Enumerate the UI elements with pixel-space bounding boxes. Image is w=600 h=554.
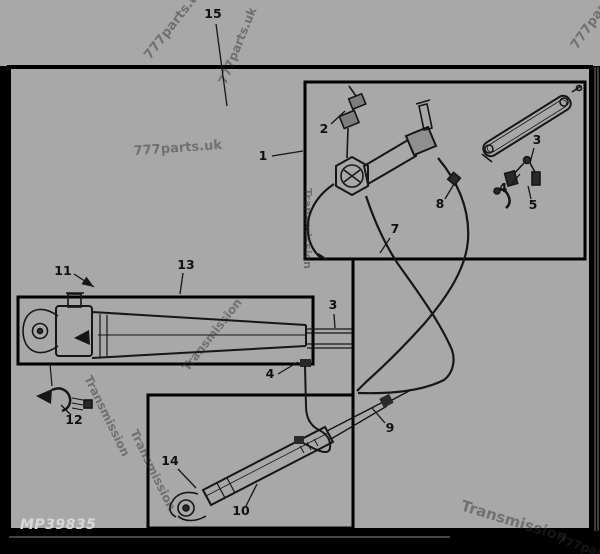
- part-callout-3[interactable]: 3: [329, 297, 338, 312]
- plate-number-label: MP39835: [20, 517, 96, 533]
- part-callout-10[interactable]: 10: [232, 503, 250, 518]
- diagram-field: [0, 0, 600, 532]
- part-callout-13[interactable]: 13: [177, 257, 194, 272]
- watermark-text: Transmission: [301, 188, 314, 269]
- part-callout-12[interactable]: 12: [65, 412, 82, 427]
- clevis-pin-bottom-center: [183, 505, 189, 511]
- fitting-link-1: [347, 128, 348, 158]
- part-callout-15[interactable]: 15: [204, 6, 221, 21]
- parts-diagram-page: 777parts.uk777parts.uk777parts.uk777part…: [0, 0, 600, 554]
- part-callout-9[interactable]: 9: [386, 420, 395, 435]
- part-callout-3[interactable]: 3: [533, 132, 542, 147]
- clevis-joint: [524, 157, 531, 164]
- clevis-pin-center: [38, 329, 43, 334]
- part-callout-8[interactable]: 8: [436, 196, 445, 211]
- part-callout-4[interactable]: 4: [266, 366, 275, 381]
- part-callout-14[interactable]: 14: [161, 453, 179, 468]
- part-callout-7[interactable]: 7: [391, 221, 400, 236]
- hose-elbow-fitting: [300, 359, 311, 367]
- parts-diagram-canvas: 777parts.uk777parts.uk777parts.uk777part…: [0, 0, 600, 554]
- small-fitting-right: [532, 172, 540, 185]
- part-callout-2[interactable]: 2: [320, 121, 329, 136]
- part-callout-11[interactable]: 11: [54, 263, 71, 278]
- fitting-bolt-head: [84, 400, 92, 408]
- part-callout-5[interactable]: 5: [529, 197, 538, 212]
- bottom-margin: [0, 531, 600, 554]
- part-callout-4[interactable]: 4: [499, 180, 508, 195]
- part-callout-1[interactable]: 1: [259, 148, 268, 163]
- barrel-port-fitting: [294, 436, 304, 444]
